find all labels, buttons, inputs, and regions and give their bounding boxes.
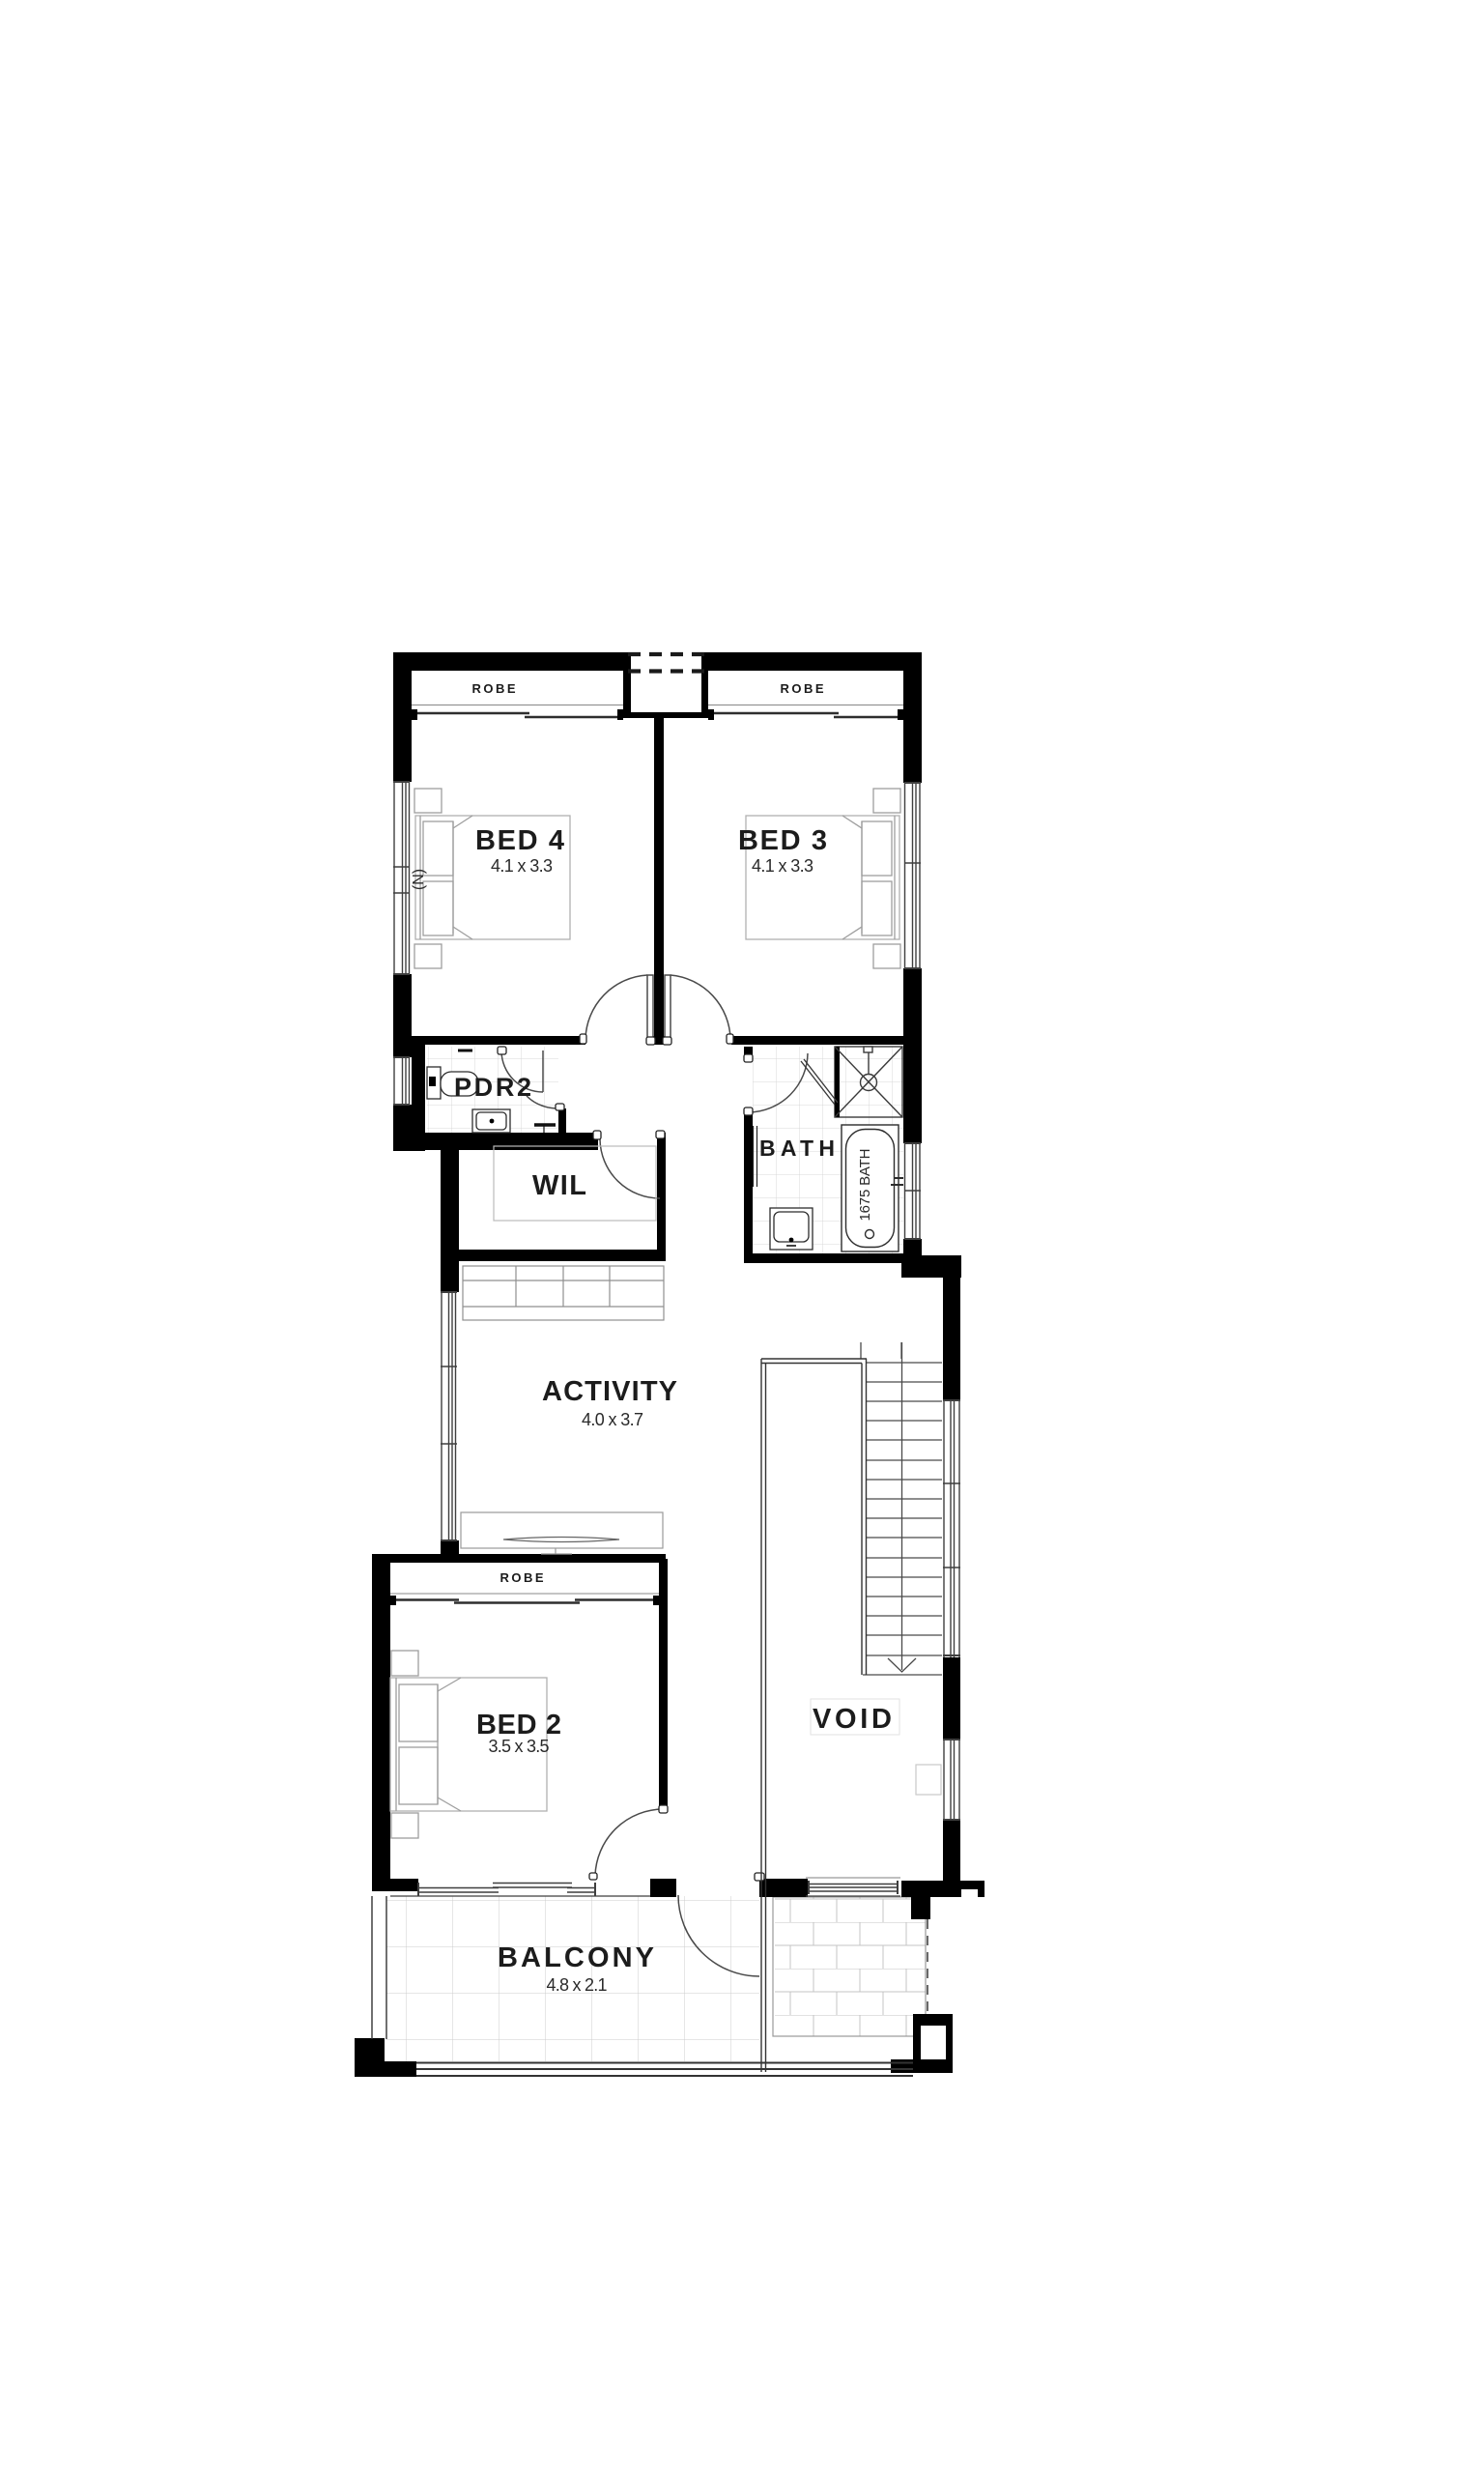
svg-text:BALCONY: BALCONY <box>498 1942 654 1973</box>
svg-text:4.1 x 3.3: 4.1 x 3.3 <box>752 856 813 876</box>
svg-text:BED 3: BED 3 <box>738 825 827 856</box>
svg-text:PDR2: PDR2 <box>454 1073 531 1102</box>
svg-text:3.5 x 3.5: 3.5 x 3.5 <box>489 1737 550 1756</box>
svg-text:WIL: WIL <box>532 1170 586 1201</box>
svg-text:(N): (N) <box>411 869 427 890</box>
svg-text:VOID: VOID <box>813 1704 892 1735</box>
svg-text:4.1 x 3.3: 4.1 x 3.3 <box>491 856 553 876</box>
svg-text:4.0 x 3.7: 4.0 x 3.7 <box>582 1410 643 1429</box>
svg-text:4.8 x 2.1: 4.8 x 2.1 <box>547 1975 608 1995</box>
svg-text:1675 BATH: 1675 BATH <box>857 1149 873 1222</box>
svg-text:BED 4: BED 4 <box>475 825 564 856</box>
